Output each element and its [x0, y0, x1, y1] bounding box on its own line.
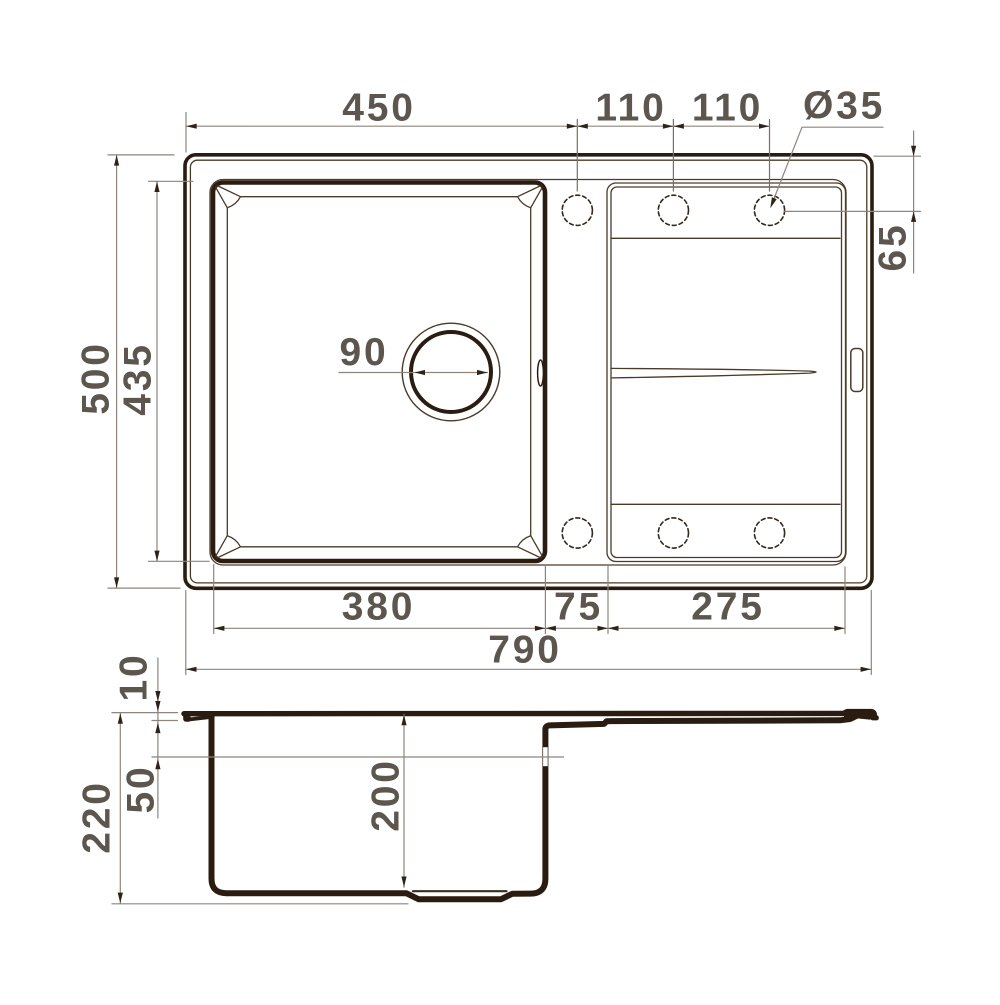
svg-text:110: 110 — [595, 87, 666, 130]
svg-text:220: 220 — [76, 780, 119, 853]
svg-text:200: 200 — [365, 758, 408, 831]
svg-text:110: 110 — [692, 87, 763, 130]
svg-text:450: 450 — [342, 87, 415, 130]
svg-text:75: 75 — [554, 586, 603, 629]
svg-text:90: 90 — [340, 331, 389, 374]
svg-text:Ø35: Ø35 — [803, 85, 885, 128]
svg-text:65: 65 — [872, 223, 915, 272]
svg-text:790: 790 — [488, 629, 561, 672]
svg-text:500: 500 — [75, 341, 118, 414]
svg-text:275: 275 — [691, 586, 764, 629]
svg-text:50: 50 — [120, 765, 163, 814]
svg-text:435: 435 — [117, 342, 160, 415]
svg-text:380: 380 — [342, 586, 415, 629]
svg-text:10: 10 — [113, 653, 156, 702]
